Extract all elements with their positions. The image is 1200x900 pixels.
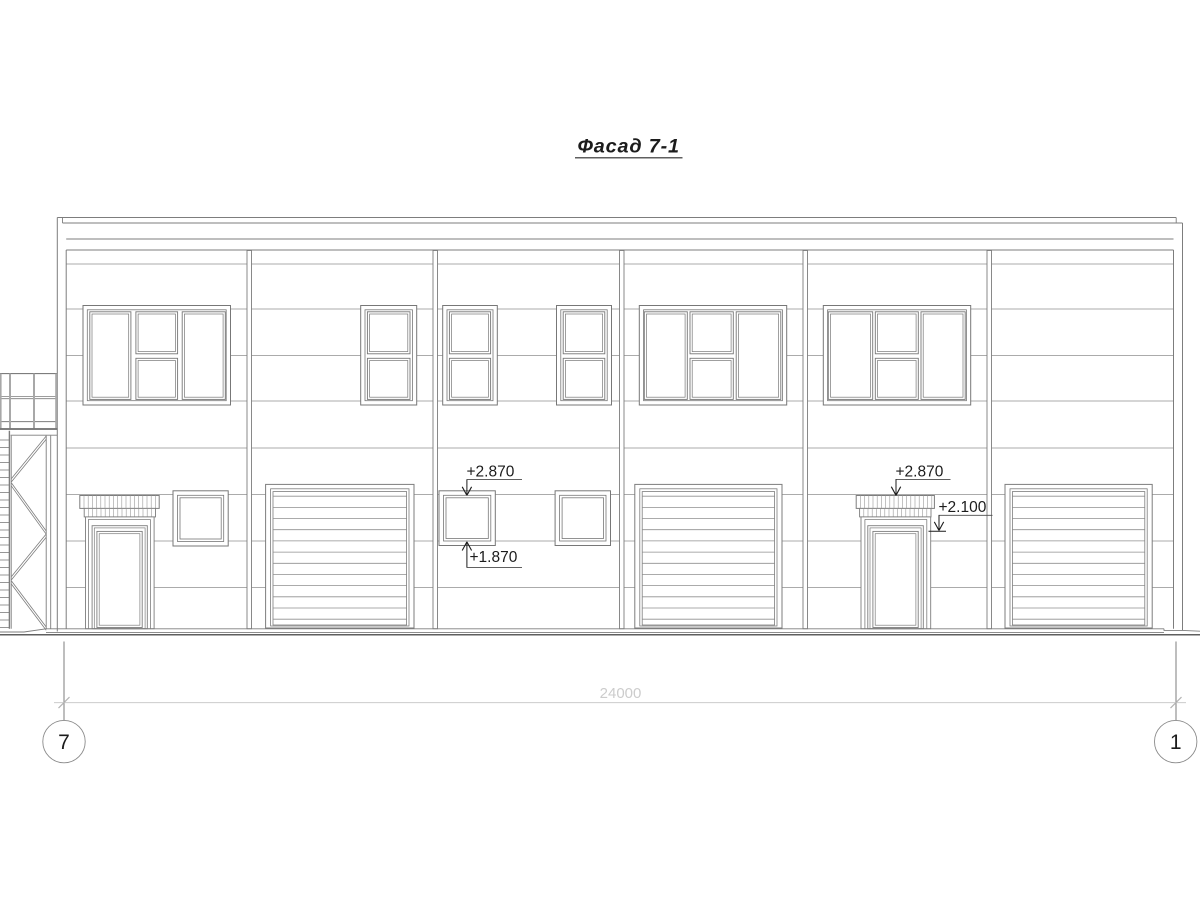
svg-text:7: 7 (58, 731, 70, 754)
svg-text:1: 1 (1170, 731, 1182, 754)
svg-text:+1.870: +1.870 (470, 549, 518, 566)
svg-text:+2.870: +2.870 (467, 464, 515, 481)
svg-text:24000: 24000 (600, 685, 642, 702)
svg-text:+2.870: +2.870 (896, 464, 944, 481)
svg-text:+2.100: +2.100 (939, 499, 987, 516)
svg-text:Фасад 7-1: Фасад 7-1 (578, 136, 680, 158)
